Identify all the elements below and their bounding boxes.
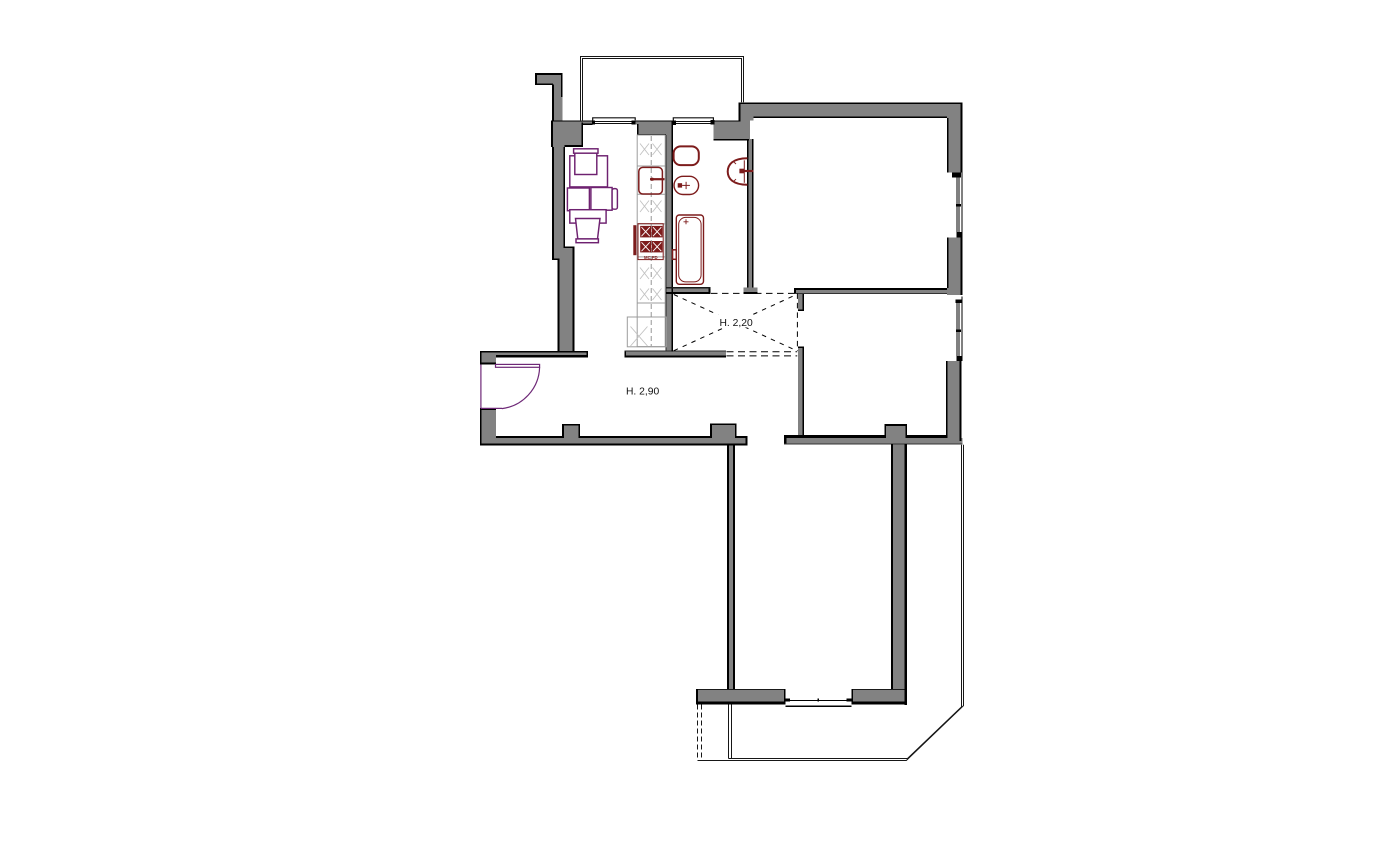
svg-text:H. 2,90: H. 2,90 <box>626 387 659 398</box>
svg-text:MC FD: MC FD <box>644 255 658 260</box>
svg-text:H. 2,20: H. 2,20 <box>720 318 753 329</box>
